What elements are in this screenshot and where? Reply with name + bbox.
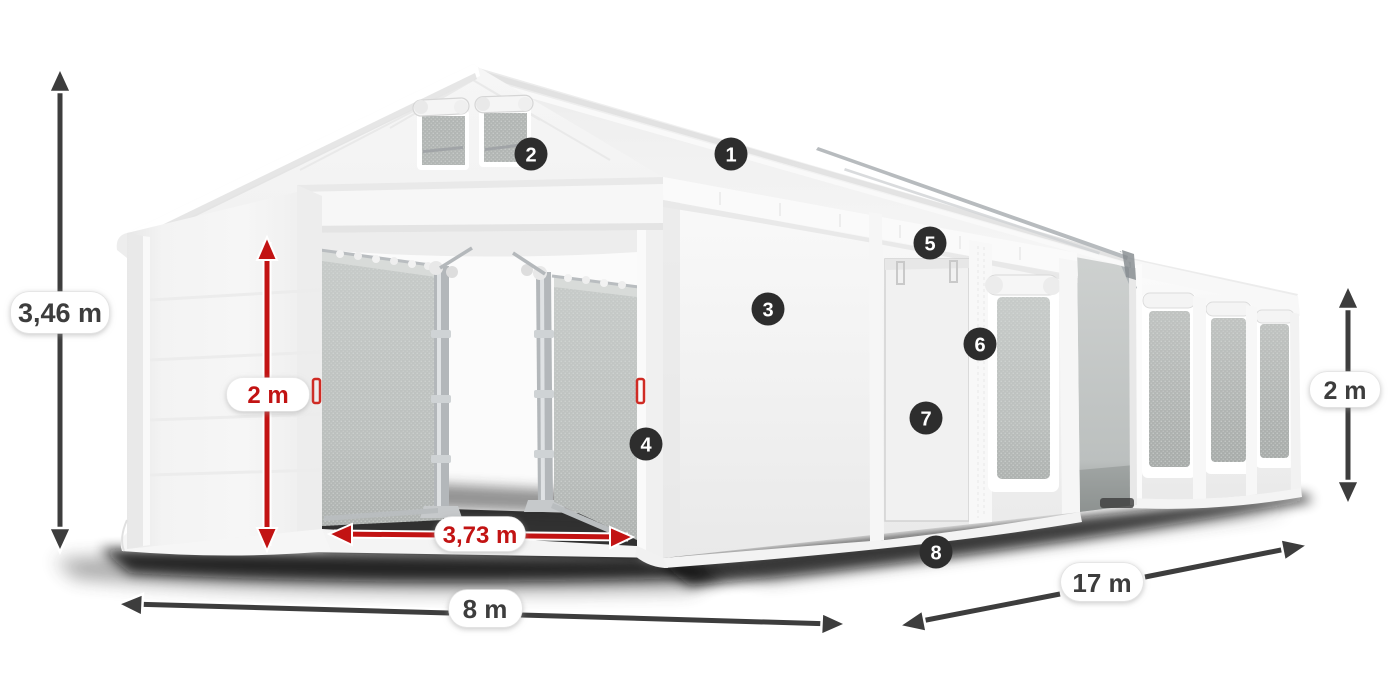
svg-text:8: 8 bbox=[930, 543, 941, 565]
svg-text:6: 6 bbox=[974, 335, 985, 357]
svg-text:2 m: 2 m bbox=[1323, 377, 1366, 405]
svg-text:3,46 m: 3,46 m bbox=[18, 298, 102, 328]
svg-text:4: 4 bbox=[640, 435, 652, 457]
svg-text:3: 3 bbox=[762, 300, 773, 322]
svg-text:2: 2 bbox=[525, 145, 536, 167]
svg-text:1: 1 bbox=[725, 145, 736, 167]
svg-text:8 m: 8 m bbox=[463, 594, 508, 624]
svg-text:7: 7 bbox=[920, 409, 931, 431]
svg-text:17 m: 17 m bbox=[1072, 568, 1131, 598]
svg-text:3,73 m: 3,73 m bbox=[443, 522, 518, 549]
svg-text:5: 5 bbox=[924, 234, 935, 256]
svg-text:2 m: 2 m bbox=[247, 382, 288, 409]
